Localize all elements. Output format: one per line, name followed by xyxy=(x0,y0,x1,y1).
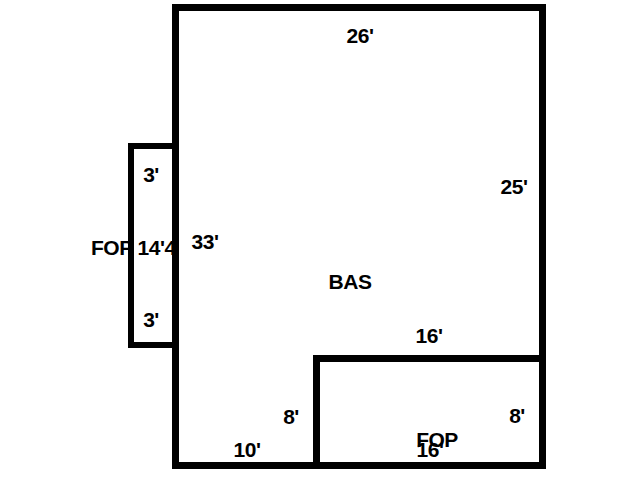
area-label-fop-left-porch: FOP 14'4 xyxy=(91,237,176,258)
dimension-fop-top: 16' xyxy=(416,325,443,346)
dimension-fop-left: 8' xyxy=(283,406,299,427)
dimension-main-bottom-left: 10' xyxy=(234,439,261,460)
dimension-porch-top: 3' xyxy=(143,164,159,185)
dimension-main-left: 33' xyxy=(192,231,219,252)
floor-plan: 26' 25' 33' 10' FOP 14'4 3' 3' BAS 16' 8… xyxy=(0,0,640,480)
dimension-main-top: 26' xyxy=(347,25,374,46)
dimension-fop-bottom: 16' xyxy=(417,439,444,460)
dimension-main-right: 25' xyxy=(501,176,528,197)
dimension-fop-right: 8' xyxy=(509,405,525,426)
area-label-bas: BAS xyxy=(329,271,372,292)
dimension-porch-bottom: 3' xyxy=(143,309,159,330)
